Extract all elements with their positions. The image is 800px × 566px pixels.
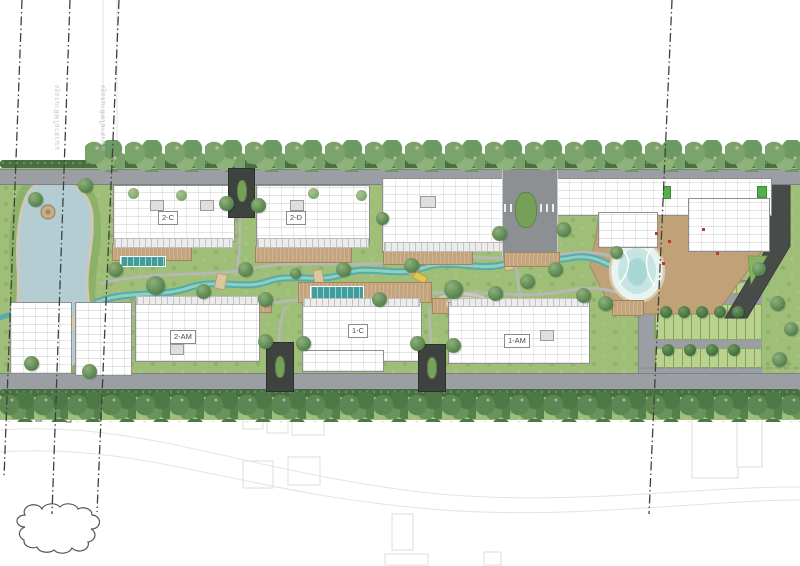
tree-icon [82,364,97,379]
tree-icon [251,198,266,213]
clubhouse-east-wing [688,198,770,252]
furniture-dot [716,252,719,255]
deck-2d [255,246,352,263]
tree-icon [556,222,571,237]
balcony-strip [450,298,588,307]
tree-icon [258,334,273,349]
deck-central [383,250,473,265]
furniture-dot [662,262,665,265]
building-core [170,344,184,355]
tree-icon [219,196,234,211]
building-2am-west [10,302,72,374]
tree-icon [108,262,123,277]
tree-icon [728,344,740,356]
revision-cloud-icon [17,504,100,553]
balcony-strip [114,238,233,248]
gate-island [237,180,247,202]
south-tree-row [0,392,800,422]
clubhouse-mid-wing [598,212,658,248]
building-label-1am: 1-AM [504,334,530,348]
tree-icon [520,274,535,289]
building-label-2d: 2-D [286,211,306,225]
balcony-strip [136,296,258,305]
tree-icon [28,192,43,207]
tree-icon [732,306,744,318]
building-label-2c: 2-C [158,211,178,225]
north-tree-row [85,140,800,172]
tree-icon [336,262,351,277]
tree-icon [24,356,39,371]
tree-icon [488,286,503,301]
tree-icon [308,188,319,199]
balcony-strip [303,298,420,307]
tree-icon [684,344,696,356]
furniture-dot [702,228,705,231]
tree-icon [662,344,674,356]
tree-icon [610,246,623,259]
easement-label-west-b: แนวสายไฟฟ้าแรงสูง [98,85,108,150]
tree-icon [444,280,463,299]
tree-icon [196,284,211,299]
tree-icon [548,262,563,277]
tree-icon [410,336,425,351]
building-core [290,200,304,211]
tree-icon [770,296,785,311]
neighbor-buildings [243,404,762,565]
building-1c-wing [302,350,384,372]
tree-icon [404,258,419,273]
tree-icon [78,178,93,193]
building-label-1c: 1-C [348,324,368,338]
tree-icon [784,322,798,336]
building-1am [448,302,590,364]
balcony-strip [384,242,504,252]
gate-island [275,356,285,378]
building-central [382,178,506,252]
building-2am [135,300,260,362]
tree-icon [296,336,311,351]
building-core [150,200,164,211]
tree-icon [146,276,165,295]
tree-icon [598,296,613,311]
tree-icon [372,292,387,307]
tree-icon [356,190,367,201]
tree-icon [258,292,273,307]
tree-icon [176,190,187,201]
tree-icon [238,262,253,277]
deck-club-garden [612,300,644,316]
tree-icon [678,306,690,318]
gate-island [427,357,437,379]
building-core [200,200,214,211]
parking-stall-row [654,282,760,294]
lap-pool-west [120,256,166,267]
furniture-dot [655,232,658,235]
tree-icon [290,268,301,279]
tree-icon [376,212,389,225]
tree-icon [128,188,139,199]
tree-icon [714,306,726,318]
furniture-dot [668,240,671,243]
easement-label-west-a: แนวสายไฟฟ้าแรงสูง [52,85,62,150]
tree-icon [706,344,718,356]
site-plan-canvas: 2-C 2-D 2-AM 1-C 1-AM แนวสายไฟฟ้าแรงสูง … [0,0,800,566]
green-roof [663,186,671,199]
building-core [540,330,554,341]
tree-icon [660,306,672,318]
building-label-2am: 2-AM [170,330,196,344]
balcony-strip [257,238,369,248]
tree-icon [696,306,708,318]
tree-icon [772,352,787,367]
tree-icon [752,262,766,276]
entrance-island [515,192,537,228]
tree-icon [446,338,461,353]
building-core [420,196,436,208]
tree-icon [492,226,507,241]
green-roof [757,186,767,198]
tree-icon [576,288,591,303]
